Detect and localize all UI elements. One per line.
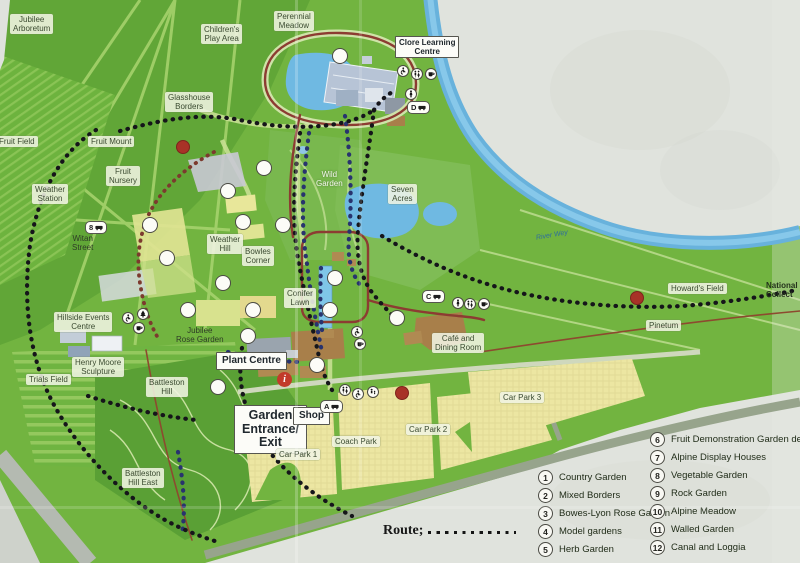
- legend-number: 12: [650, 540, 665, 555]
- legend-item: 8 Vegetable Garden: [650, 468, 800, 483]
- legend-item: 7 Alpine Display Houses: [650, 450, 800, 465]
- legend-label: Country Garden: [559, 472, 627, 483]
- legend-number: 11: [650, 522, 665, 537]
- legend-number: 10: [650, 504, 665, 519]
- legend-item: 12 Canal and Loggia: [650, 540, 800, 555]
- legend-label: Fruit Demonstration Garden de: [671, 434, 800, 445]
- legend-label: Mixed Borders: [559, 490, 620, 501]
- legend-item: 10 Alpine Meadow: [650, 504, 800, 519]
- legend-label: Vegetable Garden: [671, 470, 748, 481]
- legend-item: 9 Rock Garden: [650, 486, 800, 501]
- legend-number: 9: [650, 486, 665, 501]
- legend-number: 8: [650, 468, 665, 483]
- legend-item: 11 Walled Garden: [650, 522, 800, 537]
- scale-bar: [381, 541, 491, 557]
- route-key: Route;: [383, 523, 516, 539]
- legend-number: 1: [538, 470, 553, 485]
- legend-number: 4: [538, 524, 553, 539]
- legend-number: 2: [538, 488, 553, 503]
- legend-item: 6 Fruit Demonstration Garden de: [650, 432, 800, 447]
- legend-number: 5: [538, 542, 553, 557]
- coach-park-area: [338, 383, 434, 490]
- legend-column-2: 6 Fruit Demonstration Garden de 7 Alpine…: [650, 432, 800, 558]
- legend-label: Walled Garden: [671, 524, 734, 535]
- legend-number: 7: [650, 450, 665, 465]
- information-icon: i: [277, 372, 292, 387]
- legend-label: Alpine Display Houses: [671, 452, 766, 463]
- legend-label: Model gardens: [559, 526, 622, 537]
- legend-number: 6: [650, 432, 665, 447]
- legend-label: Alpine Meadow: [671, 506, 736, 517]
- garden-map-scan: JubileeArboretumChildren'sPlay AreaPeren…: [0, 0, 800, 563]
- route-key-label: Route;: [383, 523, 423, 539]
- legend-label: Rock Garden: [671, 488, 727, 499]
- legend-number: 3: [538, 506, 553, 521]
- legend-label: Canal and Loggia: [671, 542, 745, 553]
- route-dotted-sample: [428, 531, 516, 534]
- seven-acres-lake: [345, 184, 419, 239]
- legend-label: Herb Garden: [559, 544, 614, 555]
